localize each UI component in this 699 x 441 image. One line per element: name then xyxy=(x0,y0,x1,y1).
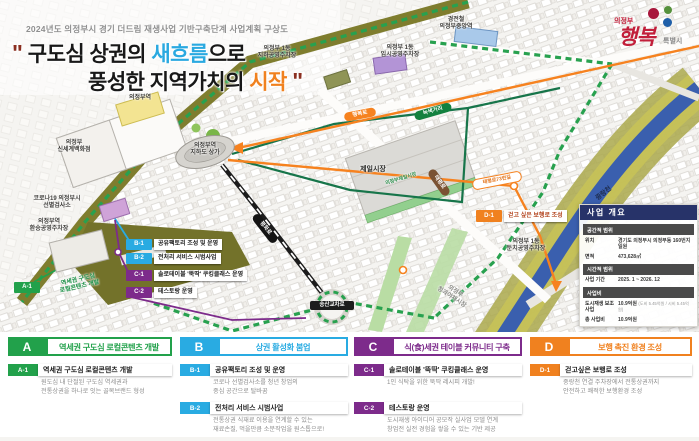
label-riverside-parking: 의정부 1동 둔치공영주차장 xyxy=(498,239,554,253)
label-dept-store: 의정부 신세계백화점 xyxy=(46,140,102,154)
program-c-title: 식(食)세권 테이블 커뮤니티 구축 xyxy=(392,337,522,356)
overview-panel-title: 사업 개요 xyxy=(580,205,697,220)
label-parking-underground: 의정부 1동 지하공영주차장 xyxy=(248,46,306,60)
item-b1-code: B-1 xyxy=(180,364,210,376)
label-covid-center: 코로나19 의정부시 선별검사소 xyxy=(24,196,90,210)
item-b2-code: B-2 xyxy=(180,402,210,414)
section-budget: 사업비 xyxy=(583,287,694,298)
row-value: 경기도 의정부시 의정부동 160번지 일원 xyxy=(618,238,692,251)
quote-open: " xyxy=(12,40,22,66)
label-transfer-parking: 의정부역 환승공영주차장 xyxy=(18,219,80,233)
project-overview-panel: 사업 개요 공간적 범위 위치 경기도 의정부시 의정부동 160번지 일원 면… xyxy=(579,204,698,327)
item-c1-code: C-1 xyxy=(354,364,384,376)
item-a1-desc: 원도심 내 단절된 구도심 역세권과 전통상권을 하나로 잇는 골목브랜드 형성 xyxy=(41,379,172,396)
item-c1-desc: 1인 식탁을 위한 뚝딱 레시피 개발! xyxy=(387,379,522,396)
map-callout-a1-code: A-1 xyxy=(14,282,40,293)
program-panel: A 역세권 구도심 로컬콘텐츠 개발 A-1 역세권 구도심 로컬콘텐츠 개발 … xyxy=(0,332,699,437)
item-d1-desc: 중랑천 연결 주차장에서 전통상권까지 안전하고 쾌적한 보행환경 조성 xyxy=(563,379,692,396)
row-label: 사업 기간 xyxy=(585,277,615,284)
label-jeil-market: 제일시장 xyxy=(352,166,394,174)
section-spatial-scope: 공간적 범위 xyxy=(583,224,694,235)
program-c-header: C 식(食)세권 테이블 커뮤니티 구축 xyxy=(354,337,522,356)
logo-suffix-text: 특별시 xyxy=(663,36,682,46)
program-column-a: A 역세권 구도심 로컬콘텐츠 개발 A-1 역세권 구도심 로컬콘텐츠 개발 … xyxy=(8,337,172,402)
map-callout-c1-label: 솔로테이블 '뚝딱' 쿠킹클래스 운영 xyxy=(154,270,247,281)
program-item-a1: A-1 역세권 구도심 로컬콘텐츠 개발 xyxy=(8,364,172,376)
map-callout-b2-label: 전처리 서비스 시범사업 xyxy=(154,253,221,264)
program-c-code: C xyxy=(354,337,392,356)
item-b2-title: 전처리 서비스 시범사업 xyxy=(210,402,348,414)
program-item-b2: B-2 전처리 서비스 시범사업 xyxy=(180,402,348,414)
uijeongbu-city-logo: 의정부 행복 특별시 xyxy=(602,5,696,59)
program-b-header: B 상권 활성화 붐업 xyxy=(180,337,348,356)
item-b1-title: 공유팩토리 조성 및 운영 xyxy=(210,364,348,376)
item-a1-title: 역세권 구도심 로컬콘텐츠 개발 xyxy=(38,364,172,376)
program-item-c2: C-2 테스토랑 운영 xyxy=(354,402,522,414)
row-label: 위치 xyxy=(585,238,615,245)
title-text: 으로 xyxy=(208,43,246,66)
logo-dot-red xyxy=(648,8,659,19)
item-c2-title: 테스토랑 운영 xyxy=(384,402,522,414)
row-value: 2025. 1 ~ 2026. 12 xyxy=(618,277,660,284)
program-d-title: 보행 촉진 환경 조성 xyxy=(568,337,692,356)
row-label: 도시재생 보조사업 xyxy=(585,301,615,314)
row-value: 473,628㎡ xyxy=(618,254,641,261)
map-callout-c1-code: C-1 xyxy=(126,270,152,281)
program-a-header: A 역세권 구도심 로컬콘텐츠 개발 xyxy=(8,337,172,356)
row-period: 사업 기간 2025. 1 ~ 2026. 12 xyxy=(583,276,694,286)
title-text: 풍성한 지역가치의 xyxy=(88,71,249,94)
item-d1-title: 걷고싶은 보행로 조성 xyxy=(560,364,692,376)
program-b-title: 상권 활성화 붐업 xyxy=(218,337,348,356)
logo-brand-text: 행복 xyxy=(618,21,655,51)
map-callout-d1-label: 걷고 싶은 보행로 조성 xyxy=(504,210,567,222)
section-temporal-scope: 시간적 범위 xyxy=(583,264,694,275)
program-a-title: 역세권 구도심 로컬콘텐츠 개발 xyxy=(46,337,172,356)
row-area: 면적 473,628㎡ xyxy=(583,252,694,262)
item-c2-code: C-2 xyxy=(354,402,384,414)
map-callout-c2-label: 테스토랑 운영 xyxy=(154,287,197,298)
row-subsidy: 도시재생 보조사업 10.9억원 (도비 5.45억원 / 시비 5.45억원) xyxy=(583,299,694,315)
program-column-d: D 보행 촉진 환경 조성 D-1 걷고싶은 보행로 조성 중랑천 연결 주차장… xyxy=(530,337,692,402)
page-subtitle: 2024년도 의정부시 경기 더드림 재생사업 기반구축단계 사업계획 구상도 xyxy=(26,23,288,35)
item-a1-code: A-1 xyxy=(8,364,38,376)
map-callout-b1-code: B-1 xyxy=(126,239,152,250)
program-d-code: D xyxy=(530,337,568,356)
program-column-c: C 식(食)세권 테이블 커뮤니티 구축 C-1 솔로테이블 '뚝딱' 쿠킹클래… xyxy=(354,337,522,440)
label-parking-temp: 의정부 1동 임시공영주차장 xyxy=(368,45,432,59)
map-callout-b1-label: 공유팩토리 조성 및 운영 xyxy=(154,239,222,250)
label-underground-mall: 의정부역 지하도 상가 xyxy=(179,143,231,157)
program-column-b: B 상권 활성화 붐업 B-1 공유팩토리 조성 및 운영 코로나 선별검사소를… xyxy=(180,337,348,441)
row-location: 위치 경기도 의정부시 의정부동 160번지 일원 xyxy=(583,236,694,252)
program-b-code: B xyxy=(180,337,218,356)
quote-close: " xyxy=(292,68,302,94)
label-station: 의정부역 xyxy=(118,95,162,102)
row-total-budget: 총 사업비 10.9억원 xyxy=(583,315,694,325)
label-lrt-station: 경전철 의정부중앙역 xyxy=(432,17,480,31)
park-tree xyxy=(192,124,201,133)
map-callout-c2-code: C-2 xyxy=(126,287,152,298)
program-item-b1: B-1 공유팩토리 조성 및 운영 xyxy=(180,364,348,376)
item-c2-desc: 도시재생 아이디어 공모작 실사업 모델 연계 창업전 실전 경험을 쌓을 수 … xyxy=(387,417,522,434)
map-callout-d1-code: D-1 xyxy=(476,210,502,222)
row-value: 10.9억원 xyxy=(618,317,637,324)
badge-intersection-songsan: 송산교차로 xyxy=(310,301,354,310)
program-item-d1: D-1 걷고싶은 보행로 조성 xyxy=(530,364,692,376)
title-text: 구도심 상권의 xyxy=(28,43,152,66)
item-b2-desc: 전통상권 식재료 이용을 연계할 수 있는 재료손질, 먹을만큼 소분작업을 원… xyxy=(213,417,348,434)
program-d-header: D 보행 촉진 환경 조성 xyxy=(530,337,692,356)
row-label: 면적 xyxy=(585,254,615,261)
page-title-line1: " 구도심 상권의 새흐름으로 xyxy=(12,38,245,68)
title-accent-blue: 새흐름 xyxy=(151,43,207,66)
item-b1-desc: 코로나 선별검사소를 청년 창업의 중심 공간으로 탈바꿈 xyxy=(213,379,348,396)
map-callout-b2-code: B-2 xyxy=(126,253,152,264)
row-value: 10.9억원 (도비 5.45억원 / 시비 5.45억원) xyxy=(618,301,692,314)
page-title-line2: 풍성한 지역가치의 시작 " xyxy=(88,66,303,96)
program-item-c1: C-1 솔로테이블 '뚝딱' 쿠킹클래스 운영 xyxy=(354,364,522,376)
title-accent-orange: 시작 xyxy=(249,71,287,94)
logo-dot-blue xyxy=(663,18,672,27)
item-c1-title: 솔로테이블 '뚝딱' 쿠킹클래스 운영 xyxy=(384,364,522,376)
logo-dot-green xyxy=(664,6,672,14)
item-d1-code: D-1 xyxy=(530,364,560,376)
row-label: 총 사업비 xyxy=(585,317,615,324)
program-a-code: A xyxy=(8,337,46,356)
